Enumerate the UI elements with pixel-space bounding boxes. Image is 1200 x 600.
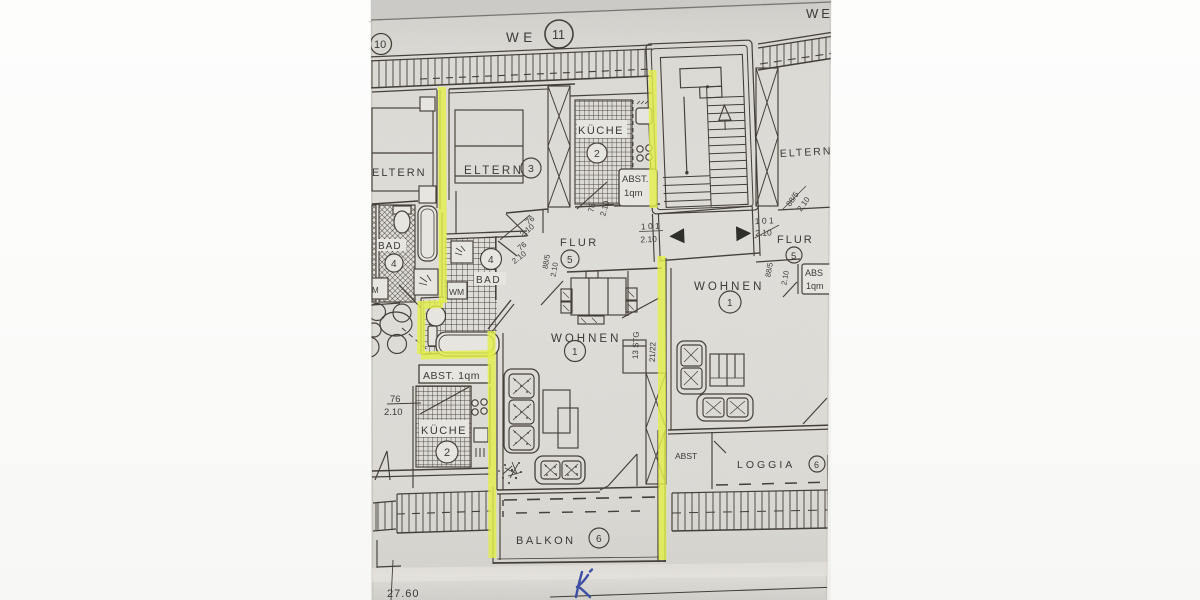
- svg-text:2.10: 2.10: [384, 407, 403, 418]
- svg-text:KÜCHE: KÜCHE: [421, 425, 467, 437]
- svg-text:WOHNEN: WOHNEN: [551, 333, 621, 345]
- svg-text:ABST: ABST: [675, 451, 697, 461]
- svg-text:BALKON: BALKON: [516, 535, 576, 547]
- svg-text:WE: WE: [806, 6, 833, 21]
- svg-text:2: 2: [594, 148, 600, 160]
- svg-text:KÜCHE: KÜCHE: [578, 125, 624, 137]
- svg-text:2.10: 2.10: [640, 234, 657, 245]
- svg-text:WE: WE: [506, 30, 537, 45]
- svg-text:ABST.: ABST.: [622, 174, 648, 185]
- svg-text:5: 5: [791, 251, 796, 262]
- svg-text:ELTERN: ELTERN: [372, 167, 427, 179]
- svg-text:LOGGIA: LOGGIA: [737, 459, 795, 471]
- svg-text:M: M: [372, 286, 379, 295]
- svg-text:FLUR: FLUR: [560, 237, 599, 249]
- svg-text:FLUR: FLUR: [777, 234, 814, 246]
- svg-text:WM: WM: [449, 287, 464, 297]
- svg-text:1 0 1: 1 0 1: [641, 221, 661, 232]
- svg-text:6: 6: [596, 534, 602, 545]
- svg-text:ABST. 1qm: ABST. 1qm: [423, 370, 480, 382]
- svg-text:5: 5: [567, 255, 573, 266]
- svg-text:21/22: 21/22: [648, 341, 658, 362]
- svg-text:1qm: 1qm: [806, 281, 824, 291]
- svg-text:1 0 1: 1 0 1: [755, 215, 775, 226]
- svg-text:13 STG: 13 STG: [631, 331, 641, 359]
- svg-text:11: 11: [552, 28, 565, 42]
- svg-text:2: 2: [444, 447, 450, 459]
- svg-text:ELTERN: ELTERN: [464, 165, 524, 177]
- svg-text:ABS: ABS: [805, 268, 823, 278]
- svg-text:1: 1: [572, 347, 578, 358]
- svg-text:3: 3: [528, 163, 534, 175]
- svg-text:4: 4: [391, 259, 397, 270]
- svg-text:BAD: BAD: [378, 241, 402, 252]
- svg-text:10: 10: [374, 39, 386, 51]
- svg-text:1qm: 1qm: [624, 188, 643, 199]
- svg-text:4: 4: [488, 255, 494, 266]
- svg-text:6: 6: [814, 460, 819, 470]
- svg-text:BAD: BAD: [476, 275, 501, 286]
- svg-text:1: 1: [727, 298, 733, 309]
- svg-text:27.60: 27.60: [387, 588, 420, 600]
